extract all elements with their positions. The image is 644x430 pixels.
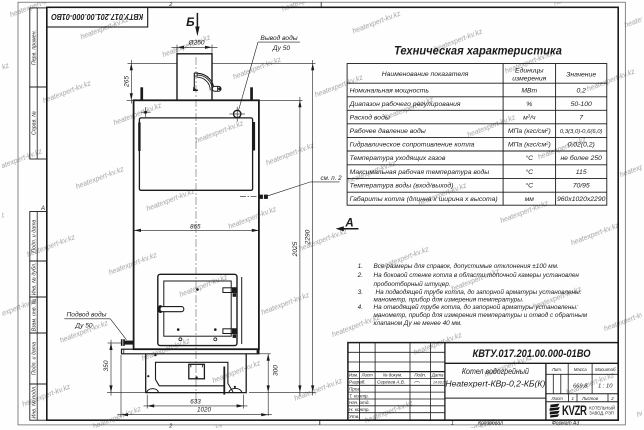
svg-text:Диапазон рабочего регулировани: Диапазон рабочего регулирования [349, 100, 461, 108]
svg-text:ЗАВОД, РЭП: ЗАВОД, РЭП [589, 410, 614, 415]
svg-text:0,3(3,0)-0,6(6,0): 0,3(3,0)-0,6(6,0) [560, 129, 603, 135]
svg-text:Лит.: Лит. [551, 367, 562, 372]
svg-text:№ докум.: № докум. [383, 373, 402, 378]
svg-text:70/95: 70/95 [573, 183, 590, 190]
svg-text:Ø250: Ø250 [188, 39, 205, 46]
svg-text:пробоотборный штуцер.: пробоотборный штуцер. [374, 280, 451, 288]
svg-text:На отводящей трубе котла, до з: На отводящей трубе котла, до запорной ар… [374, 303, 579, 311]
svg-text:Н. контр.: Н. контр. [349, 407, 370, 412]
svg-text:Взам. инв. №: Взам. инв. № [32, 298, 38, 331]
svg-text:мм: мм [525, 196, 535, 203]
svg-text:м3/ч: м3/ч [523, 113, 536, 121]
svg-text:1.: 1. [358, 263, 363, 270]
svg-text:Подп.: Подп. [414, 373, 426, 378]
svg-text:Котел водогрейный: Котел водогрейный [462, 367, 529, 376]
svg-text:Единицы: Единицы [515, 67, 543, 75]
svg-text:МВт: МВт [521, 87, 537, 94]
svg-text:Ду 50: Ду 50 [272, 45, 291, 52]
svg-text:Гидравлическое сопротивление к: Гидравлическое сопротивление котла [350, 141, 475, 149]
svg-text:Heatexpert-КВр-0,2-КБ(К): Heatexpert-КВр-0,2-КБ(К) [445, 380, 545, 389]
svg-text:Разраб.: Разраб. [349, 380, 366, 385]
svg-text:0,2: 0,2 [576, 87, 586, 94]
svg-text:Дата: Дата [431, 373, 444, 378]
svg-text:669,8: 669,8 [573, 384, 588, 390]
svg-text:А: А [40, 206, 45, 212]
svg-text:0,02(0,2): 0,02(0,2) [568, 142, 595, 149]
svg-text:На боковой стенке котла в обла: На боковой стенке котла в области топочн… [374, 271, 580, 279]
svg-text:Т. контр.: Т. контр. [349, 393, 369, 398]
svg-text:Изм.: Изм. [349, 373, 358, 378]
svg-text:Инв. № подл.: Инв. № подл. [32, 386, 38, 419]
svg-text:°С: °С [525, 154, 533, 162]
svg-text:Подп. и дата: Подп. и дата [32, 342, 38, 375]
svg-text:МПа (кгс/см2): МПа (кгс/см2) [508, 141, 551, 149]
svg-text:клапаном Ду не менее 40 мм.: клапаном Ду не менее 40 мм. [374, 320, 463, 327]
svg-text:Значение: Значение [566, 71, 596, 78]
svg-text:Перв. примен.: Перв. примен. [32, 30, 38, 65]
svg-text:Вывод воды: Вывод воды [260, 34, 297, 42]
svg-text:Масштаб: Масштаб [595, 367, 616, 372]
svg-text:Сергеев А.В.: Сергеев А.В. [377, 380, 405, 385]
svg-text:°С: °С [525, 168, 533, 176]
svg-text:960х1020х2290: 960х1020х2290 [557, 196, 606, 203]
svg-text:2025: 2025 [292, 241, 299, 257]
svg-text:Габариты котла (длинна х ширин: Габариты котла (длинна х ширина х высота… [350, 195, 498, 203]
svg-text:манометр, прибор для измерения: манометр, прибор для измерения температу… [374, 311, 588, 319]
svg-text:3.: 3. [358, 289, 363, 296]
svg-text:Номинальная мощность: Номинальная мощность [350, 87, 430, 94]
svg-text:На подводящей трубе котла, до: На подводящей трубе котла, до запорной а… [376, 288, 582, 296]
svg-text:7: 7 [579, 114, 583, 121]
svg-text:2: 2 [610, 396, 614, 401]
svg-text:°С: °С [525, 182, 533, 190]
svg-text:4.: 4. [358, 304, 363, 311]
svg-text:Формат А3: Формат А3 [552, 420, 580, 426]
svg-text:измерения: измерения [512, 76, 546, 83]
svg-text:МПа (кгс/см2): МПа (кгс/см2) [508, 127, 551, 135]
svg-text:А: А [344, 218, 353, 230]
svg-text:2: 2 [168, 423, 172, 429]
svg-text:50-100: 50-100 [571, 101, 592, 108]
svg-text:Листов: Листов [581, 396, 599, 401]
svg-text:Б: Б [186, 15, 195, 29]
svg-text:см. п. 2: см. п. 2 [320, 175, 342, 182]
svg-text:2: 2 [168, 2, 172, 8]
svg-text:Температура уходящих газов: Температура уходящих газов [350, 154, 446, 162]
svg-text:Масса: Масса [574, 367, 588, 372]
svg-text:KVZR: KVZR [562, 403, 587, 418]
svg-text:Температура воды (вход/выход): Температура воды (вход/выход) [350, 182, 454, 190]
svg-text:Утв.: Утв. [349, 414, 359, 419]
svg-text:манометр, прибор для измерения: манометр, прибор для измерения температу… [374, 295, 524, 303]
svg-text:865: 865 [190, 223, 201, 230]
svg-text:265: 265 [123, 76, 130, 88]
svg-text:2.: 2. [357, 272, 363, 279]
svg-text:1 : 10: 1 : 10 [598, 384, 613, 390]
svg-text:Подвод воды: Подвод воды [67, 310, 107, 318]
svg-text:Техническая характеристика: Техническая характеристика [394, 44, 562, 58]
svg-text:633: 633 [190, 399, 201, 406]
svg-text:1020: 1020 [197, 407, 212, 414]
svg-text:не более 250: не более 250 [560, 154, 602, 162]
svg-text:Инв. № дубл.: Инв. № дубл. [32, 263, 38, 296]
svg-text:Ду 50: Ду 50 [74, 322, 93, 329]
svg-text:Копировал: Копировал [478, 420, 503, 426]
svg-text:115: 115 [576, 169, 587, 176]
svg-text:1: 1 [451, 420, 454, 426]
svg-text:Подп. и дата: Подп. и дата [32, 220, 38, 253]
svg-text:300: 300 [273, 365, 280, 376]
svg-text:%: % [526, 101, 532, 108]
svg-text:Лист: Лист [361, 373, 374, 378]
svg-text:350: 350 [103, 360, 110, 371]
svg-text:Справ. №: Справ. № [32, 111, 38, 135]
svg-text:Максимальная рабочая температу: Максимальная рабочая температура воды [350, 168, 490, 176]
svg-text:КВТУ.017.201.00.000-01ВО: КВТУ.017.201.00.000-01ВО [473, 348, 591, 360]
svg-text:Лист: Лист [551, 396, 564, 401]
svg-text:Все размеры для справок, допус: Все размеры для справок, допустимые откл… [374, 262, 559, 270]
svg-text:Рабочее давление воды: Рабочее давление воды [350, 127, 426, 135]
svg-text:КВТУ.017.201.00.000-01ВО: КВТУ.017.201.00.000-01ВО [51, 12, 143, 22]
svg-text:2290: 2290 [305, 229, 312, 245]
svg-text:14.09.21: 14.09.21 [433, 380, 446, 384]
svg-text:Наименование показателя: Наименование показателя [382, 71, 469, 78]
svg-text:Расход воды: Расход воды [350, 113, 390, 121]
svg-text:Пров.: Пров. [349, 386, 361, 391]
svg-text:Нач. отд.: Нач. отд. [349, 400, 370, 405]
